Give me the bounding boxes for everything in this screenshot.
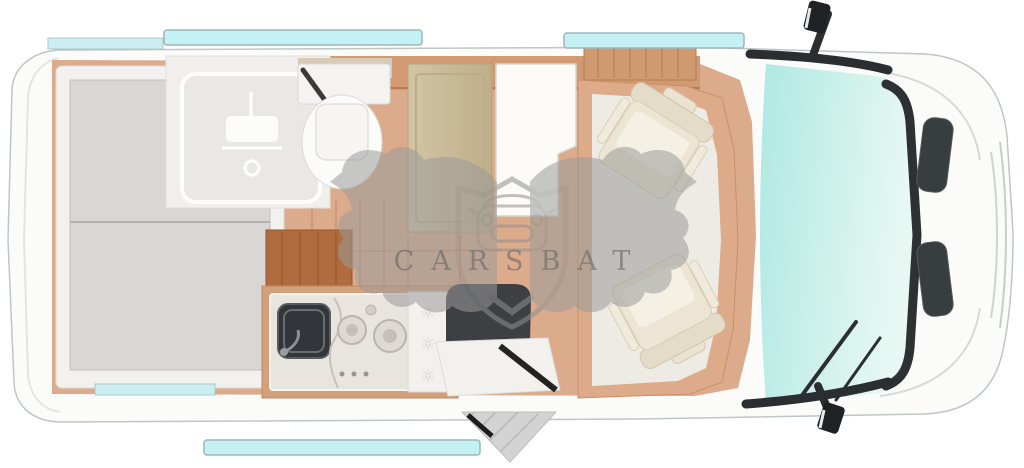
snowflake-icon: ✳ — [421, 335, 435, 355]
rear-wall-window-bottom — [95, 384, 215, 395]
side-mirror-top-icon — [803, 0, 832, 58]
snowflake-icon: ✳ — [421, 367, 435, 387]
floorplan-drawing: ✳ ✳ ✳ — [0, 0, 1024, 468]
windshield-glass — [760, 64, 913, 404]
window-strip-top-rear — [164, 30, 422, 45]
window-strip-bottom — [204, 440, 480, 455]
bench-cushion — [436, 338, 560, 396]
window-strip-top-front — [564, 33, 744, 48]
snowflake-icons: ✳ ✳ ✳ — [421, 303, 435, 387]
rear-wall-window-top — [48, 38, 163, 49]
motorhome-floorplan-image: ✳ ✳ ✳ — [0, 0, 1024, 468]
kitchen-sink-icon — [278, 304, 330, 358]
